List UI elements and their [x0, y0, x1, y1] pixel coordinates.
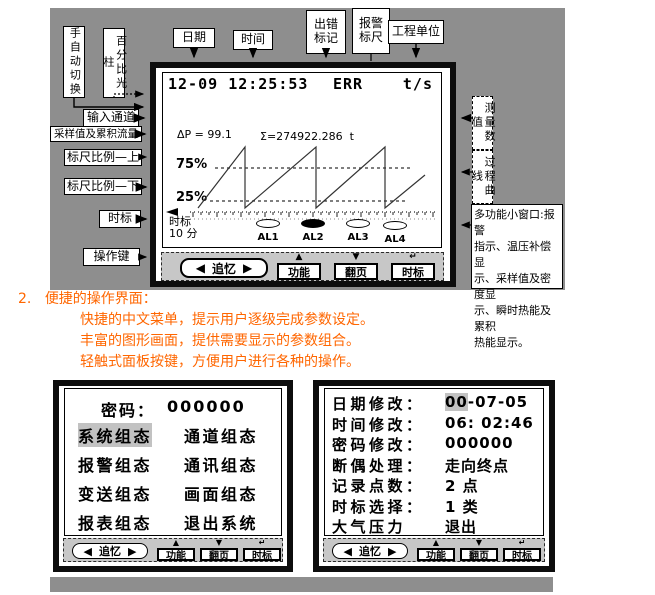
down-triangle-icon: ▼	[334, 252, 378, 262]
multi-window-line: 指示、温压补偿显	[474, 239, 561, 271]
key-timescale-button[interactable]: 时标	[391, 263, 435, 280]
callout-scale-lower: 标尺比例—下	[64, 178, 142, 195]
menu-item[interactable]: 报警组态	[78, 452, 152, 476]
key-page-button[interactable]: 翻页	[460, 548, 498, 561]
key-page-button[interactable]: 翻页	[200, 548, 238, 561]
menu-item[interactable]: 系统组态	[78, 423, 152, 447]
config-row-value[interactable]: 1 类	[445, 496, 479, 517]
key-timescale-button[interactable]: 时标	[243, 548, 281, 561]
header-error-flag: ERR	[333, 75, 363, 93]
menu-item[interactable]: 通道组态	[184, 423, 258, 447]
config-row-value[interactable]: 000000	[445, 434, 514, 452]
header-unit: t/s	[403, 75, 433, 93]
keybar-key-group: ▲功能	[277, 253, 321, 280]
down-triangle-icon: ▼	[460, 538, 498, 547]
config-row-value[interactable]: 退出	[445, 516, 477, 536]
callout-time-mark: 时标	[99, 210, 141, 228]
menu-item[interactable]: 退出系统	[184, 510, 258, 534]
section-heading: 2. 便捷的操作界面：	[18, 289, 374, 310]
callout-manual-auto: 手自动切换	[63, 26, 85, 98]
callout-measured-value: 测量数值	[472, 96, 493, 150]
menu-item[interactable]: 报表组态	[78, 510, 152, 534]
config-row-label: 记录点数：	[332, 475, 425, 496]
config-row-value[interactable]: 走向终点	[445, 455, 509, 476]
time-mark-value: 10 分	[169, 225, 198, 241]
config-row: 记录点数：2 点	[325, 475, 543, 495]
recall-right-arrow-icon[interactable]: ▶	[128, 545, 136, 558]
keybar-key-group: ↵时标	[503, 539, 541, 561]
lower-scale-percent: 25%	[176, 190, 207, 205]
config-row-label: 断偶处理：	[332, 455, 425, 476]
keybar-key-group: ▼翻页	[334, 253, 378, 280]
keybar-key-group: ▼翻页	[200, 539, 238, 561]
operation-keybar: ◀追忆▶▲功能▼翻页↵时标	[63, 538, 283, 562]
key-function-button[interactable]: 功能	[157, 548, 195, 561]
alarm-label: AL2	[296, 232, 330, 243]
recall-left-arrow-icon[interactable]: ◀	[196, 261, 205, 275]
main-screen-display: 12-09 12:25:53 ERR t/s ΔP = 99.1 Σ=27492…	[162, 72, 442, 248]
recall-label: 追忆	[99, 543, 121, 559]
alarm-ellipse-al3	[346, 219, 370, 228]
section-line: 丰富的图形画面，提供需要显示的参数组合。	[80, 331, 374, 352]
up-triangle-icon: ▲	[417, 538, 455, 547]
config-row: 时标选择：1 类	[325, 496, 543, 516]
multi-window-line: 热能显示。	[474, 335, 561, 351]
callout-error-mark: 出错 标记	[306, 10, 346, 54]
key-function-button[interactable]: 功能	[417, 548, 455, 561]
main-screen: 12-09 12:25:53 ERR t/s ΔP = 99.1 Σ=27492…	[150, 62, 456, 287]
recall-button[interactable]: ◀追忆▶	[332, 543, 408, 559]
recall-label: 追忆	[212, 260, 236, 277]
key-page-button[interactable]: 翻页	[334, 263, 378, 280]
up-triangle-icon: ▲	[157, 538, 195, 547]
menu-screen-display: 密码： 000000 系统组态通道组态报警组态通讯组态变送组态画面组态报表组态退…	[64, 388, 282, 536]
keybar-key-group: ▲功能	[417, 539, 455, 561]
menu-row: 变送组态画面组态	[65, 481, 281, 503]
alarm-ellipse-al1	[256, 219, 280, 228]
section-number: 2.	[18, 289, 31, 310]
recall-left-arrow-icon[interactable]: ◀	[84, 545, 92, 558]
delta-p-value: ΔP = 99.1	[177, 128, 232, 141]
menu-row: 报表组态退出系统	[65, 510, 281, 532]
menu-item[interactable]: 画面组态	[184, 481, 258, 505]
feature-section: 2. 便捷的操作界面： 快捷的中文菜单，提示用户逐级完成参数设定。 丰富的图形画…	[18, 289, 374, 373]
up-triangle-icon: ▲	[277, 252, 321, 262]
keybar-key-group: ↵时标	[391, 253, 435, 280]
section-line: 轻触式面板按键，方便用户进行各种的操作。	[80, 352, 374, 373]
enter-arrow-icon: ↵	[243, 538, 281, 547]
password-label: 密码：	[101, 397, 155, 421]
multi-window-line: 示、瞬时热能及累积	[474, 303, 561, 335]
config-value-highlight[interactable]: 00	[445, 393, 468, 411]
upper-scale-percent: 75%	[176, 157, 207, 172]
recall-left-arrow-icon[interactable]: ◀	[344, 545, 352, 558]
header-datetime: 12-09 12:25:53	[168, 75, 308, 93]
config-row: 断偶处理：走向终点	[325, 455, 543, 475]
operation-keybar: ◀追忆▶▲功能▼翻页↵时标	[161, 252, 444, 281]
callout-time: 时间	[233, 30, 273, 50]
menu-row: 系统组态通道组态	[65, 423, 281, 445]
config-row-value[interactable]: 2 点	[445, 475, 479, 496]
callout-date: 日期	[173, 28, 215, 48]
recall-button[interactable]: ◀追忆▶	[180, 258, 268, 278]
recall-right-arrow-icon[interactable]: ▶	[243, 261, 252, 275]
config-row-value[interactable]: 06: 02:46	[445, 414, 534, 432]
callout-percent-bar: 百分比光柱	[103, 28, 125, 98]
section-line: 快捷的中文菜单，提示用户逐级完成参数设定。	[80, 310, 374, 331]
config-screen: 日期修改：00-07-05时间修改：06: 02:46密码修改：000000断偶…	[313, 380, 555, 572]
key-timescale-button[interactable]: 时标	[503, 548, 541, 561]
config-row-label: 密码修改：	[332, 434, 425, 455]
config-row-value[interactable]: 00-07-05	[445, 393, 528, 411]
config-screen-display: 日期修改：00-07-05时间修改：06: 02:46密码修改：000000断偶…	[324, 388, 544, 536]
keybar-key-group: ▼翻页	[460, 539, 498, 561]
config-row: 日期修改：00-07-05	[325, 393, 543, 413]
config-row-label: 大气压力	[332, 516, 406, 536]
enter-arrow-icon: ↵	[391, 252, 435, 262]
gray-strip	[50, 577, 553, 592]
config-row-label: 时标选择：	[332, 496, 425, 517]
menu-row: 报警组态通讯组态	[65, 452, 281, 474]
callout-multi-window: 多功能小窗口:报警 指示、温压补偿显 示、采样值及密度显 示、瞬时热能及累积 热…	[471, 204, 563, 289]
callout-scale-upper: 标尺比例—上	[64, 149, 142, 166]
config-row: 密码修改：000000	[325, 434, 543, 454]
alarm-ellipse-al4	[383, 221, 407, 230]
callout-op-keys: 操作键	[83, 248, 140, 266]
config-row: 大气压力退出	[325, 516, 543, 536]
recall-label: 追忆	[359, 543, 381, 559]
callout-process-curve: 过程曲线	[472, 150, 493, 204]
callout-input-channel: 输入通道	[83, 109, 139, 127]
menu-screen: 密码： 000000 系统组态通道组态报警组态通讯组态变送组态画面组态报表组态退…	[53, 380, 293, 572]
recall-button[interactable]: ◀追忆▶	[72, 543, 148, 559]
alarm-label: AL3	[341, 232, 375, 243]
config-row-label: 日期修改：	[332, 393, 425, 414]
keybar-key-group: ▲功能	[157, 539, 195, 561]
keybar-key-group: ↵时标	[243, 539, 281, 561]
recall-right-arrow-icon[interactable]: ▶	[388, 545, 396, 558]
diagram-panel: 手自动切换 百分比光柱 日期 时间 出错 标记 报警 标尺 工程单位 输入通道 …	[50, 8, 565, 290]
config-row: 时间修改：06: 02:46	[325, 414, 543, 434]
multi-window-line: 多功能小窗口:报警	[474, 207, 561, 239]
menu-item[interactable]: 变送组态	[78, 481, 152, 505]
callout-sample-value: 采样值及累积流量	[50, 126, 142, 142]
alarm-label: AL1	[251, 232, 285, 243]
alarm-label: AL4	[378, 234, 412, 245]
menu-item[interactable]: 通讯组态	[184, 452, 258, 476]
callout-alarm-ruler: 报警 标尺	[352, 8, 390, 54]
enter-arrow-icon: ↵	[503, 538, 541, 547]
key-function-button[interactable]: 功能	[277, 263, 321, 280]
section-title: 便捷的操作界面：	[45, 289, 157, 310]
multi-window-line: 示、采样值及密度显	[474, 271, 561, 303]
password-value[interactable]: 000000	[167, 397, 246, 416]
sigma-total-value: Σ=274922.286 t	[260, 130, 354, 143]
operation-keybar: ◀追忆▶▲功能▼翻页↵时标	[323, 538, 545, 562]
down-triangle-icon: ▼	[200, 538, 238, 547]
config-row-label: 时间修改：	[332, 414, 425, 435]
callout-eng-unit: 工程单位	[388, 20, 444, 44]
alarm-ellipse-al2	[301, 219, 325, 228]
